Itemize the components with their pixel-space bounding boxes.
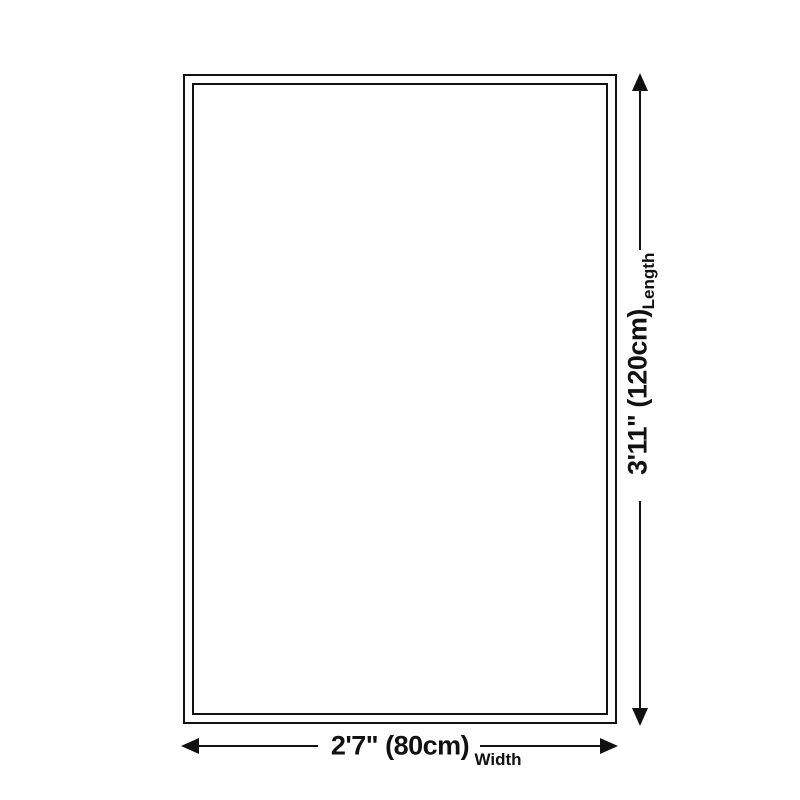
arrow-up-icon [632,73,648,91]
arrow-right-icon [600,738,618,754]
width-dimension-line-left [195,745,318,747]
rug-outline-outer [183,74,617,724]
arrow-down-icon [632,708,648,726]
width-dimension-line-right [480,745,602,747]
length-label: Length [639,253,659,310]
rug-outline-inner [192,83,608,715]
length-dimension-line-bottom [639,501,641,712]
length-dimension-line-top [639,86,641,250]
size-diagram: 3'11" (120cm) Length 2'7" (80cm) Width [0,0,800,800]
width-value: 2'7" (80cm) [331,731,469,762]
length-value: 3'11" (120cm) [623,309,654,475]
width-label: Width [474,750,521,770]
arrow-left-icon [181,738,199,754]
